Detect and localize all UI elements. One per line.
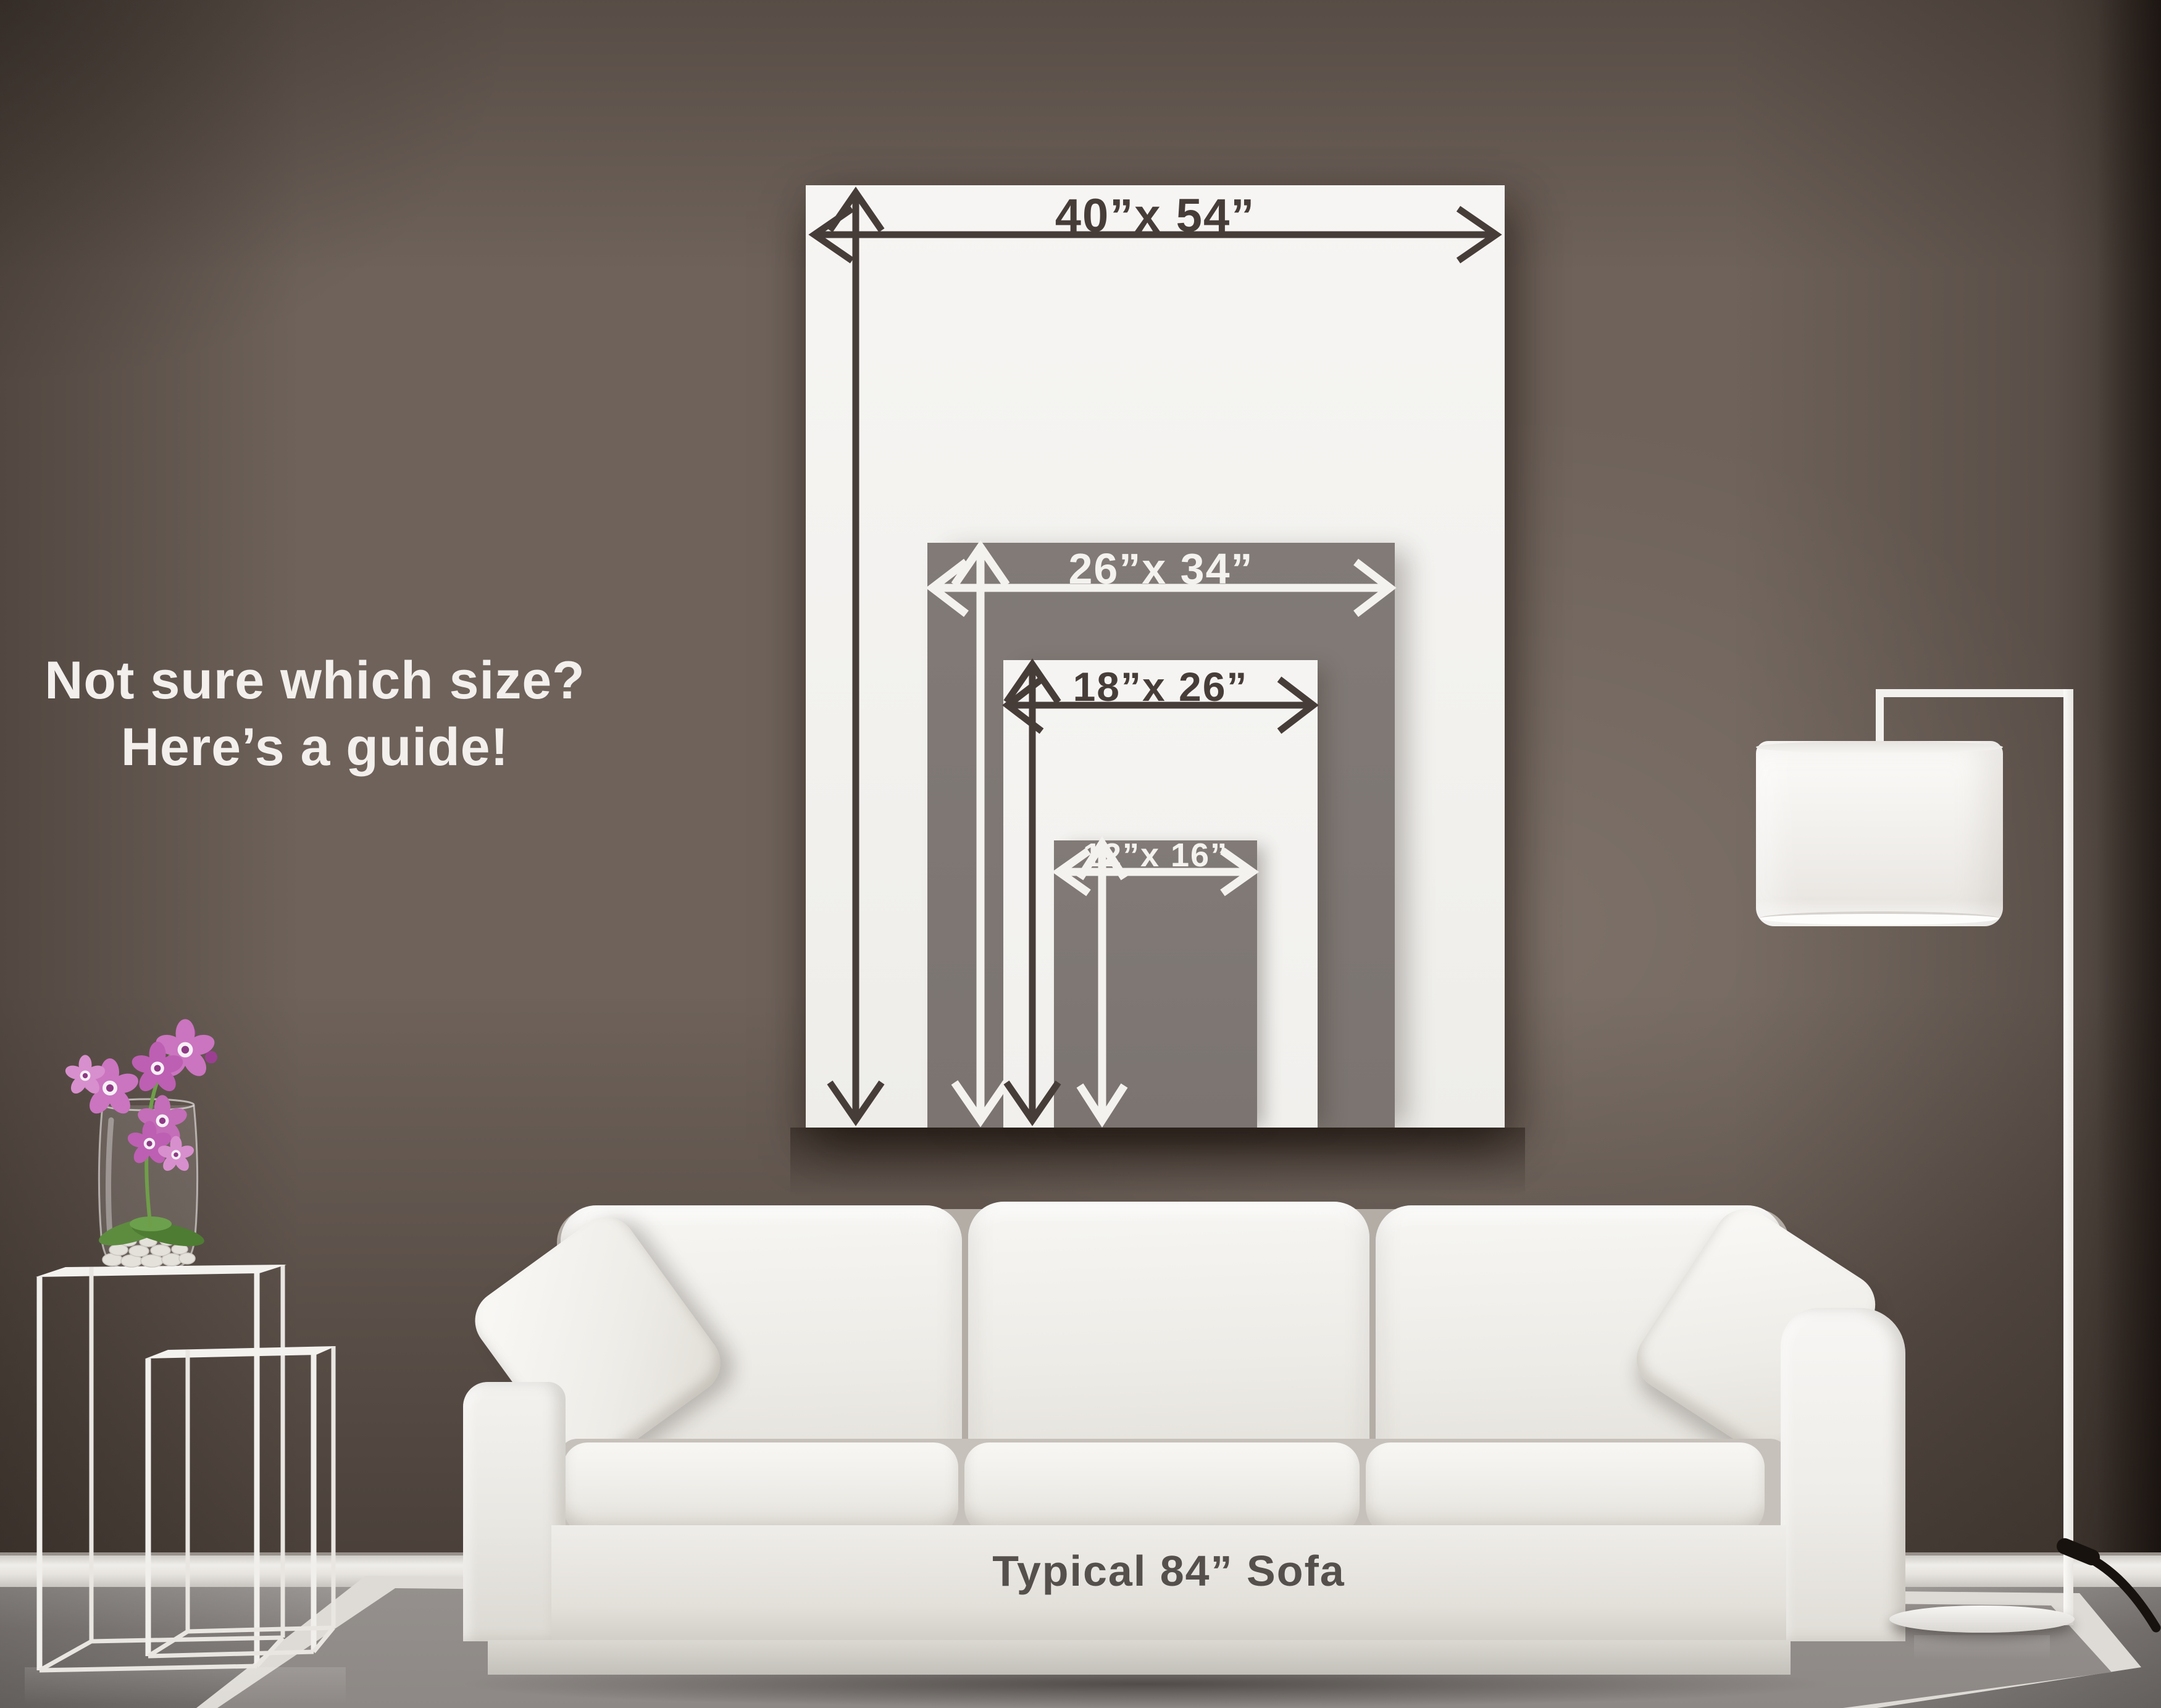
seat-cushion [964, 1442, 1360, 1536]
seat-cushion [563, 1442, 958, 1536]
lamp-base [1889, 1605, 2075, 1633]
lamp-shade-rim [1760, 911, 1999, 925]
lamp-pole [2063, 689, 2073, 1625]
sofa-arm-right [1781, 1308, 1905, 1641]
size-guide-poster panel-40x54: 40”x 54” 26”x 34” 18”x 26” 12”x 16” [806, 185, 1505, 1128]
height-arrow-26x34-icon [955, 547, 1006, 1120]
headline-line2: Here’s a guide! [34, 714, 596, 781]
wall-corner-shadow [2097, 0, 2161, 1587]
sofa-size-label: Typical 84” Sofa [551, 1546, 1786, 1596]
width-arrow-26x34-icon [932, 562, 1390, 614]
seat-cushion [1366, 1442, 1765, 1536]
sofa-arm-left [463, 1382, 566, 1641]
poster-shadow [790, 1128, 1525, 1195]
lamp-base-reflection [1914, 1635, 2050, 1660]
nesting-table-tall [36, 1265, 286, 1670]
power-cable [2056, 1531, 2161, 1643]
width-arrow-40x54-icon [814, 209, 1496, 261]
headline: Not sure which size? Here’s a guide! [34, 647, 596, 781]
sofa-plinth [488, 1640, 1791, 1675]
nesting-table-short [146, 1346, 336, 1656]
lamp-shade [1756, 741, 2003, 926]
dimension-arrows [806, 185, 1505, 1128]
lamp-shade-top [1756, 741, 2003, 753]
width-arrow-18x26-icon [1008, 679, 1313, 731]
living-room-scene: Not sure which size? Here’s a guide! 40”… [0, 0, 2161, 1708]
height-arrow-40x54-icon [830, 193, 882, 1120]
headline-line1: Not sure which size? [34, 647, 596, 714]
height-arrow-18x26-icon [1006, 664, 1058, 1120]
height-arrow-12x16-icon [1080, 844, 1124, 1120]
side-tables-and-orchid [12, 982, 370, 1698]
lamp-arm [1876, 689, 2072, 697]
